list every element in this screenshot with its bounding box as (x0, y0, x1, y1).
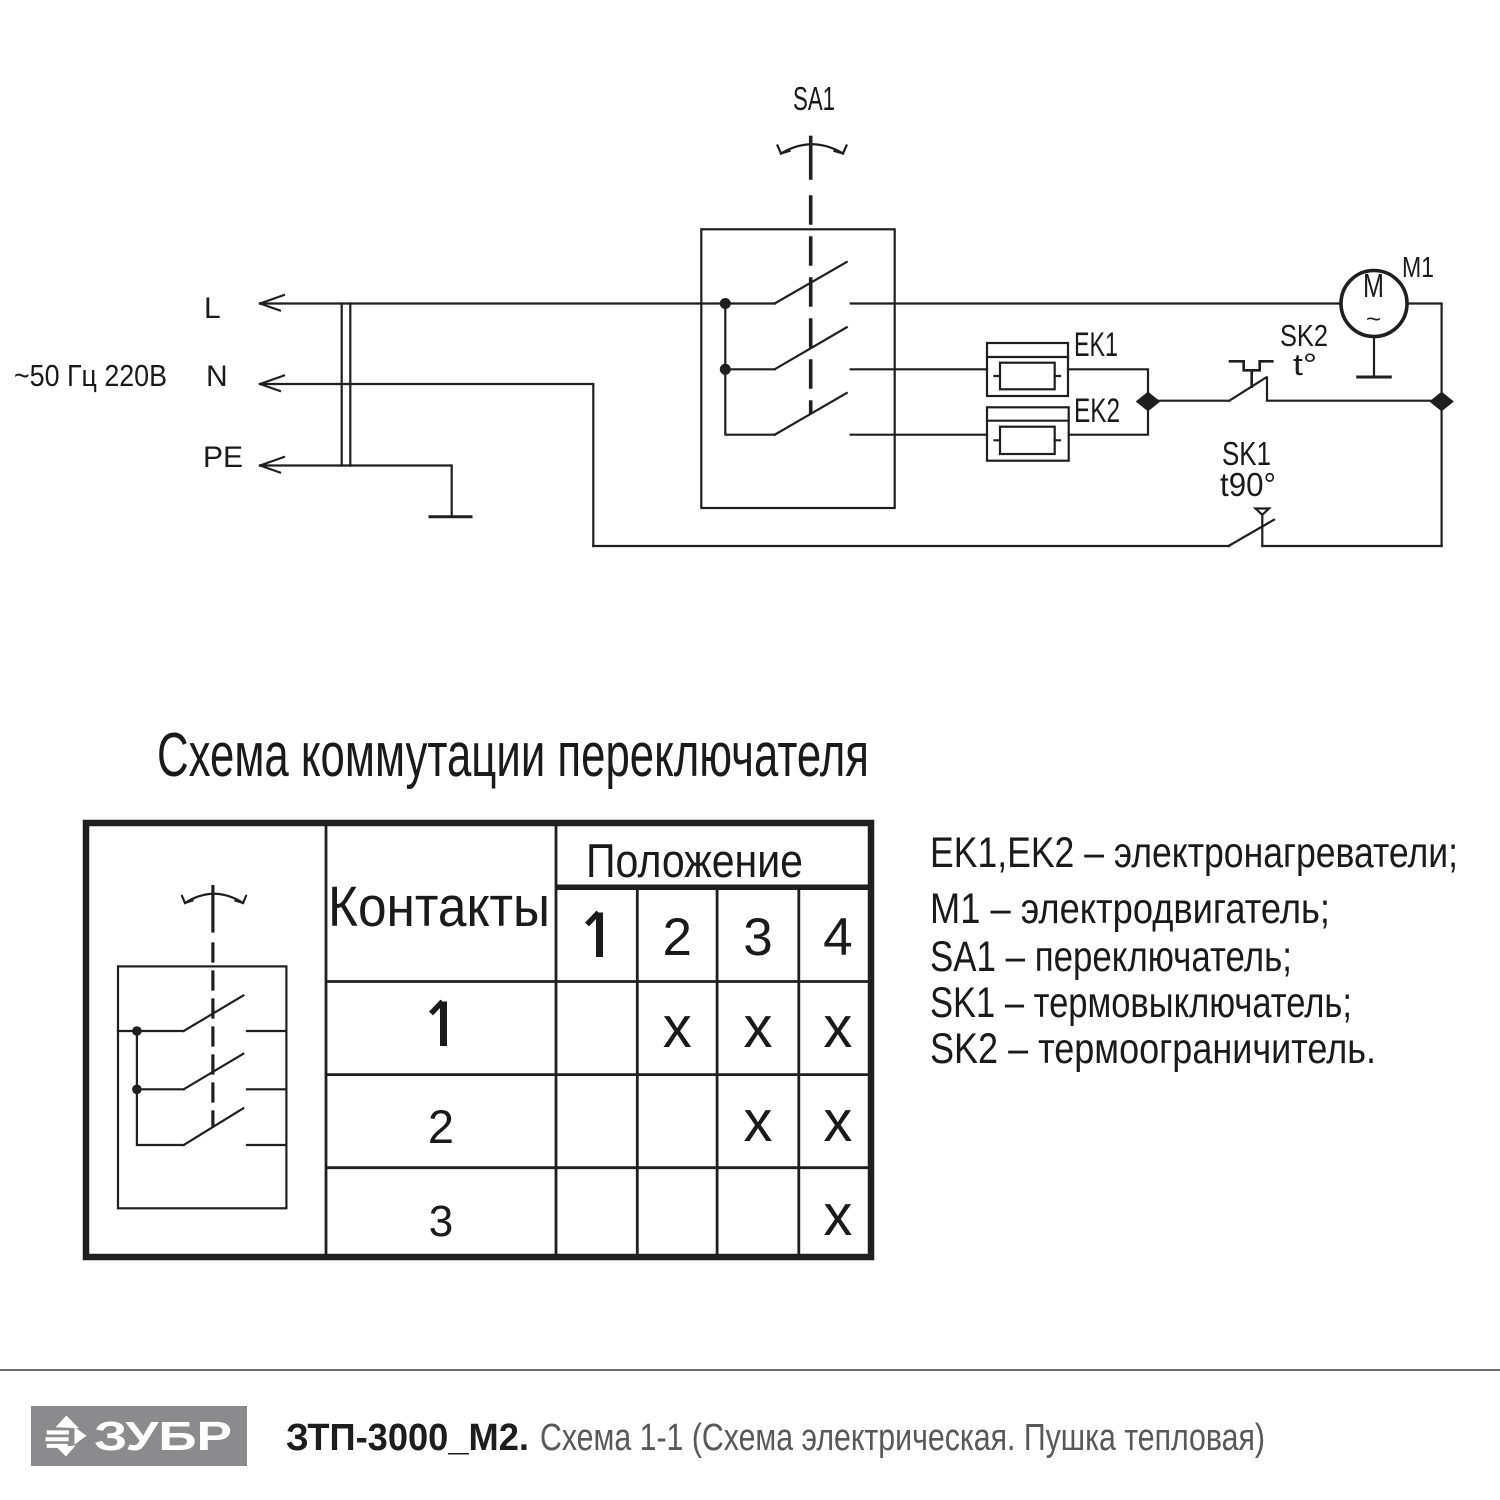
svg-text:EK2: EK2 (1074, 392, 1120, 430)
svg-text:N: N (206, 360, 228, 393)
svg-text:SK2 – термоограничитель.: SK2 – термоограничитель. (930, 1025, 1376, 1073)
svg-text:~: ~ (1366, 306, 1381, 333)
svg-text:Схема 1-1 (Схема электрическая: Схема 1-1 (Схема электрическая. Пушка те… (540, 1417, 1265, 1459)
svg-text:x: x (744, 995, 773, 1060)
svg-text:Схема коммутации переключателя: Схема коммутации переключателя (157, 721, 869, 790)
svg-text:x: x (823, 1089, 852, 1154)
svg-text:x: x (823, 995, 852, 1060)
svg-text:~50 Гц 220В: ~50 Гц 220В (14, 358, 167, 393)
svg-text:SA1: SA1 (793, 80, 835, 117)
svg-text:М1 – электродвигатель;: М1 – электродвигатель; (930, 885, 1330, 933)
svg-text:Положение: Положение (586, 834, 803, 887)
svg-text:EK1,EK2 – электронагреватели;: EK1,EK2 – электронагреватели; (930, 829, 1458, 877)
svg-text:t°: t° (1293, 347, 1317, 382)
svg-text:x: x (663, 995, 692, 1060)
svg-text:3: 3 (743, 908, 772, 967)
svg-text:SA1 – переключатель;: SA1 – переключатель; (930, 933, 1292, 981)
svg-text:x: x (823, 1183, 852, 1248)
svg-text:3: 3 (429, 1197, 453, 1246)
svg-text:ЗТП-3000_М2.: ЗТП-3000_М2. (286, 1417, 529, 1459)
svg-text:M: M (1363, 267, 1384, 304)
svg-text:PE: PE (203, 441, 243, 474)
svg-text:4: 4 (823, 908, 852, 967)
svg-text:2: 2 (428, 1100, 454, 1153)
svg-text:ЗУБР: ЗУБР (94, 1413, 232, 1459)
svg-text:2: 2 (662, 908, 691, 967)
svg-text:t90°: t90° (1220, 466, 1276, 503)
svg-text:x: x (744, 1089, 773, 1154)
svg-text:Контакты: Контакты (328, 875, 550, 939)
svg-text:M1: M1 (1402, 252, 1434, 284)
svg-text:L: L (204, 292, 221, 325)
svg-text:SK1 – термовыключатель;: SK1 – термовыключатель; (930, 979, 1352, 1027)
svg-text:EK1: EK1 (1074, 326, 1118, 364)
